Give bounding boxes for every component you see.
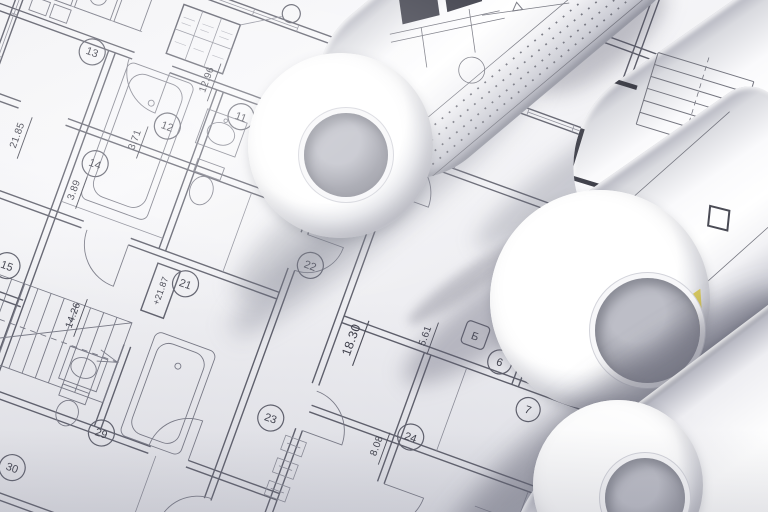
room-number-label: 30 — [4, 461, 20, 476]
room-number-label: 21 — [177, 277, 193, 292]
dimension-label: 21.85 — [8, 121, 27, 150]
dimension-label: 18.30 — [339, 322, 363, 358]
roll-curl-hole-3 — [605, 458, 685, 512]
dimension-label: 14.26 — [64, 301, 83, 330]
roll-curl-end — [248, 53, 433, 238]
room-number-label: 7 — [523, 404, 533, 417]
room-number-label: 23 — [263, 411, 279, 426]
kitchen-counter — [29, 0, 153, 48]
room-number-label: 6 — [494, 356, 504, 369]
elevation-label: +21.87 — [151, 275, 171, 306]
roll-curl-hole — [304, 113, 388, 197]
room-number-label: 13 — [84, 45, 100, 60]
dimension-label: 12.96 — [197, 65, 216, 94]
bathtub-2 — [119, 331, 217, 456]
dimension-label: 8.08 — [368, 434, 385, 457]
room-number-label: 12 — [159, 119, 175, 134]
blueprint-photo: 13 12 11 14 15 21 22 8 5 6 7 23 24 29 30… — [0, 0, 768, 512]
room-number-label: 15 — [0, 259, 14, 274]
room-number-label: 29 — [93, 426, 109, 441]
dimension-label: 3.71 — [126, 128, 143, 151]
